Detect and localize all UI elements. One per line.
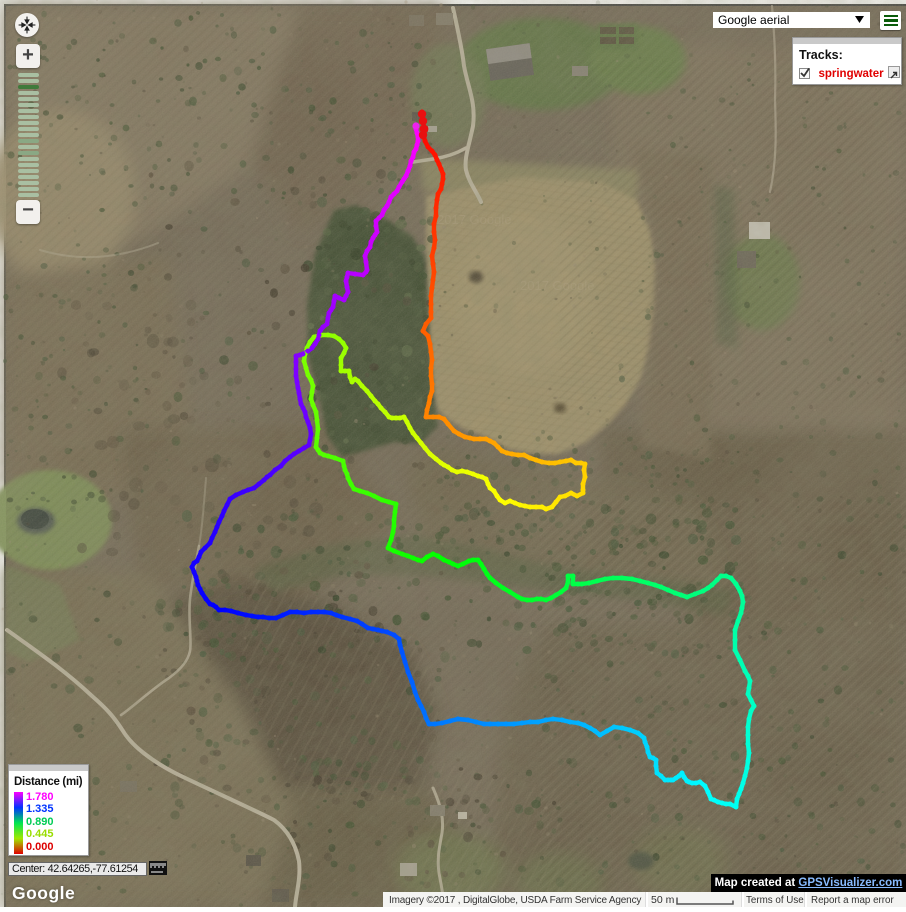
svg-text:2017 Google: 2017 Google — [437, 212, 511, 227]
svg-text:2017 Google: 2017 Google — [520, 278, 594, 293]
